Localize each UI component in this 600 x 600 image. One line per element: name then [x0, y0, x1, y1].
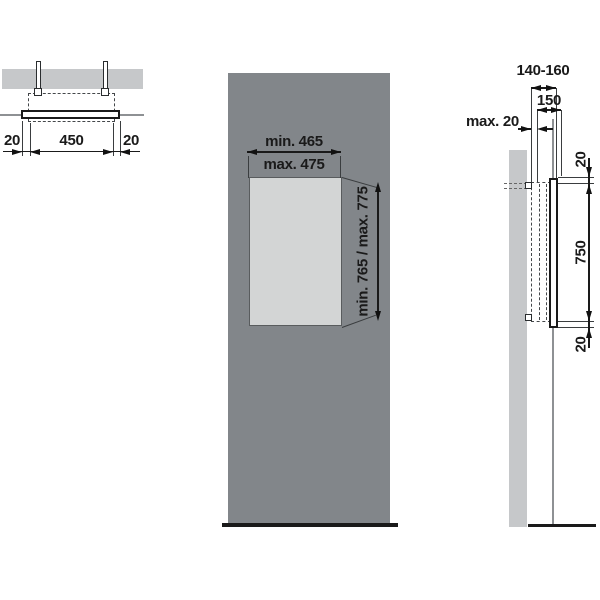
- wall-offset-dim-tail: [547, 128, 553, 130]
- dim-arrow: [375, 182, 381, 192]
- dim-arrow: [103, 149, 113, 155]
- side-pin-anchor-top: [525, 182, 532, 189]
- pin-anchor-right: [101, 88, 109, 96]
- niche-width-max-label: max. 475: [247, 157, 341, 172]
- height-label: 750: [574, 232, 589, 274]
- dim-arrow: [586, 311, 592, 321]
- niche-height-label: min. 765 / max. 775: [356, 177, 371, 327]
- plan-dim-right-label: 20: [119, 133, 143, 148]
- niche-height-dim-line: [377, 188, 379, 314]
- gap-top-label: 20: [574, 145, 589, 175]
- dim-arrow: [537, 126, 547, 132]
- dim-arrow: [546, 85, 556, 91]
- dim-arrow: [247, 149, 257, 155]
- side-recess-outline: [531, 182, 551, 322]
- side-recess-inner-line: [546, 184, 547, 320]
- extension-line: [537, 110, 538, 182]
- extension-line: [561, 110, 562, 176]
- gap-bottom-label: 20: [574, 330, 589, 360]
- dim-arrow: [521, 126, 531, 132]
- installation-drawing: 20 450 20 min. 465 max. 475 min. 765 / m…: [0, 0, 600, 600]
- front-floor-line: [222, 523, 398, 527]
- dim-arrow: [12, 149, 22, 155]
- side-pin-anchor-bottom: [525, 314, 532, 321]
- niche-width-dim-line: [247, 151, 341, 153]
- depth-label: 150: [519, 93, 579, 108]
- depth-range-label: 140-160: [503, 63, 583, 78]
- dim-arrow: [375, 311, 381, 321]
- plan-dim-width-label: 450: [49, 133, 94, 148]
- plan-mirror: [21, 110, 120, 119]
- side-mirror: [549, 178, 558, 328]
- dim-arrow: [331, 149, 341, 155]
- side-recess-inner-line: [539, 184, 540, 320]
- mounting-pin-right: [103, 61, 108, 91]
- mounting-pin-left: [36, 61, 41, 91]
- side-mounting-pin: [504, 183, 527, 189]
- wall-offset-label: max. 20: [466, 114, 518, 129]
- pin-anchor-left: [34, 88, 42, 96]
- mirror-niche: [250, 178, 341, 325]
- dim-arrow: [30, 149, 40, 155]
- dim-arrow: [120, 149, 130, 155]
- plan-wall-section: [2, 69, 143, 89]
- dim-arrow: [531, 85, 541, 91]
- niche-width-min-label: min. 465: [247, 134, 341, 149]
- side-floor-line: [528, 524, 596, 527]
- dim-arrow: [586, 184, 592, 194]
- side-wall-section: [509, 150, 527, 527]
- plan-dim-left-label: 20: [0, 133, 24, 148]
